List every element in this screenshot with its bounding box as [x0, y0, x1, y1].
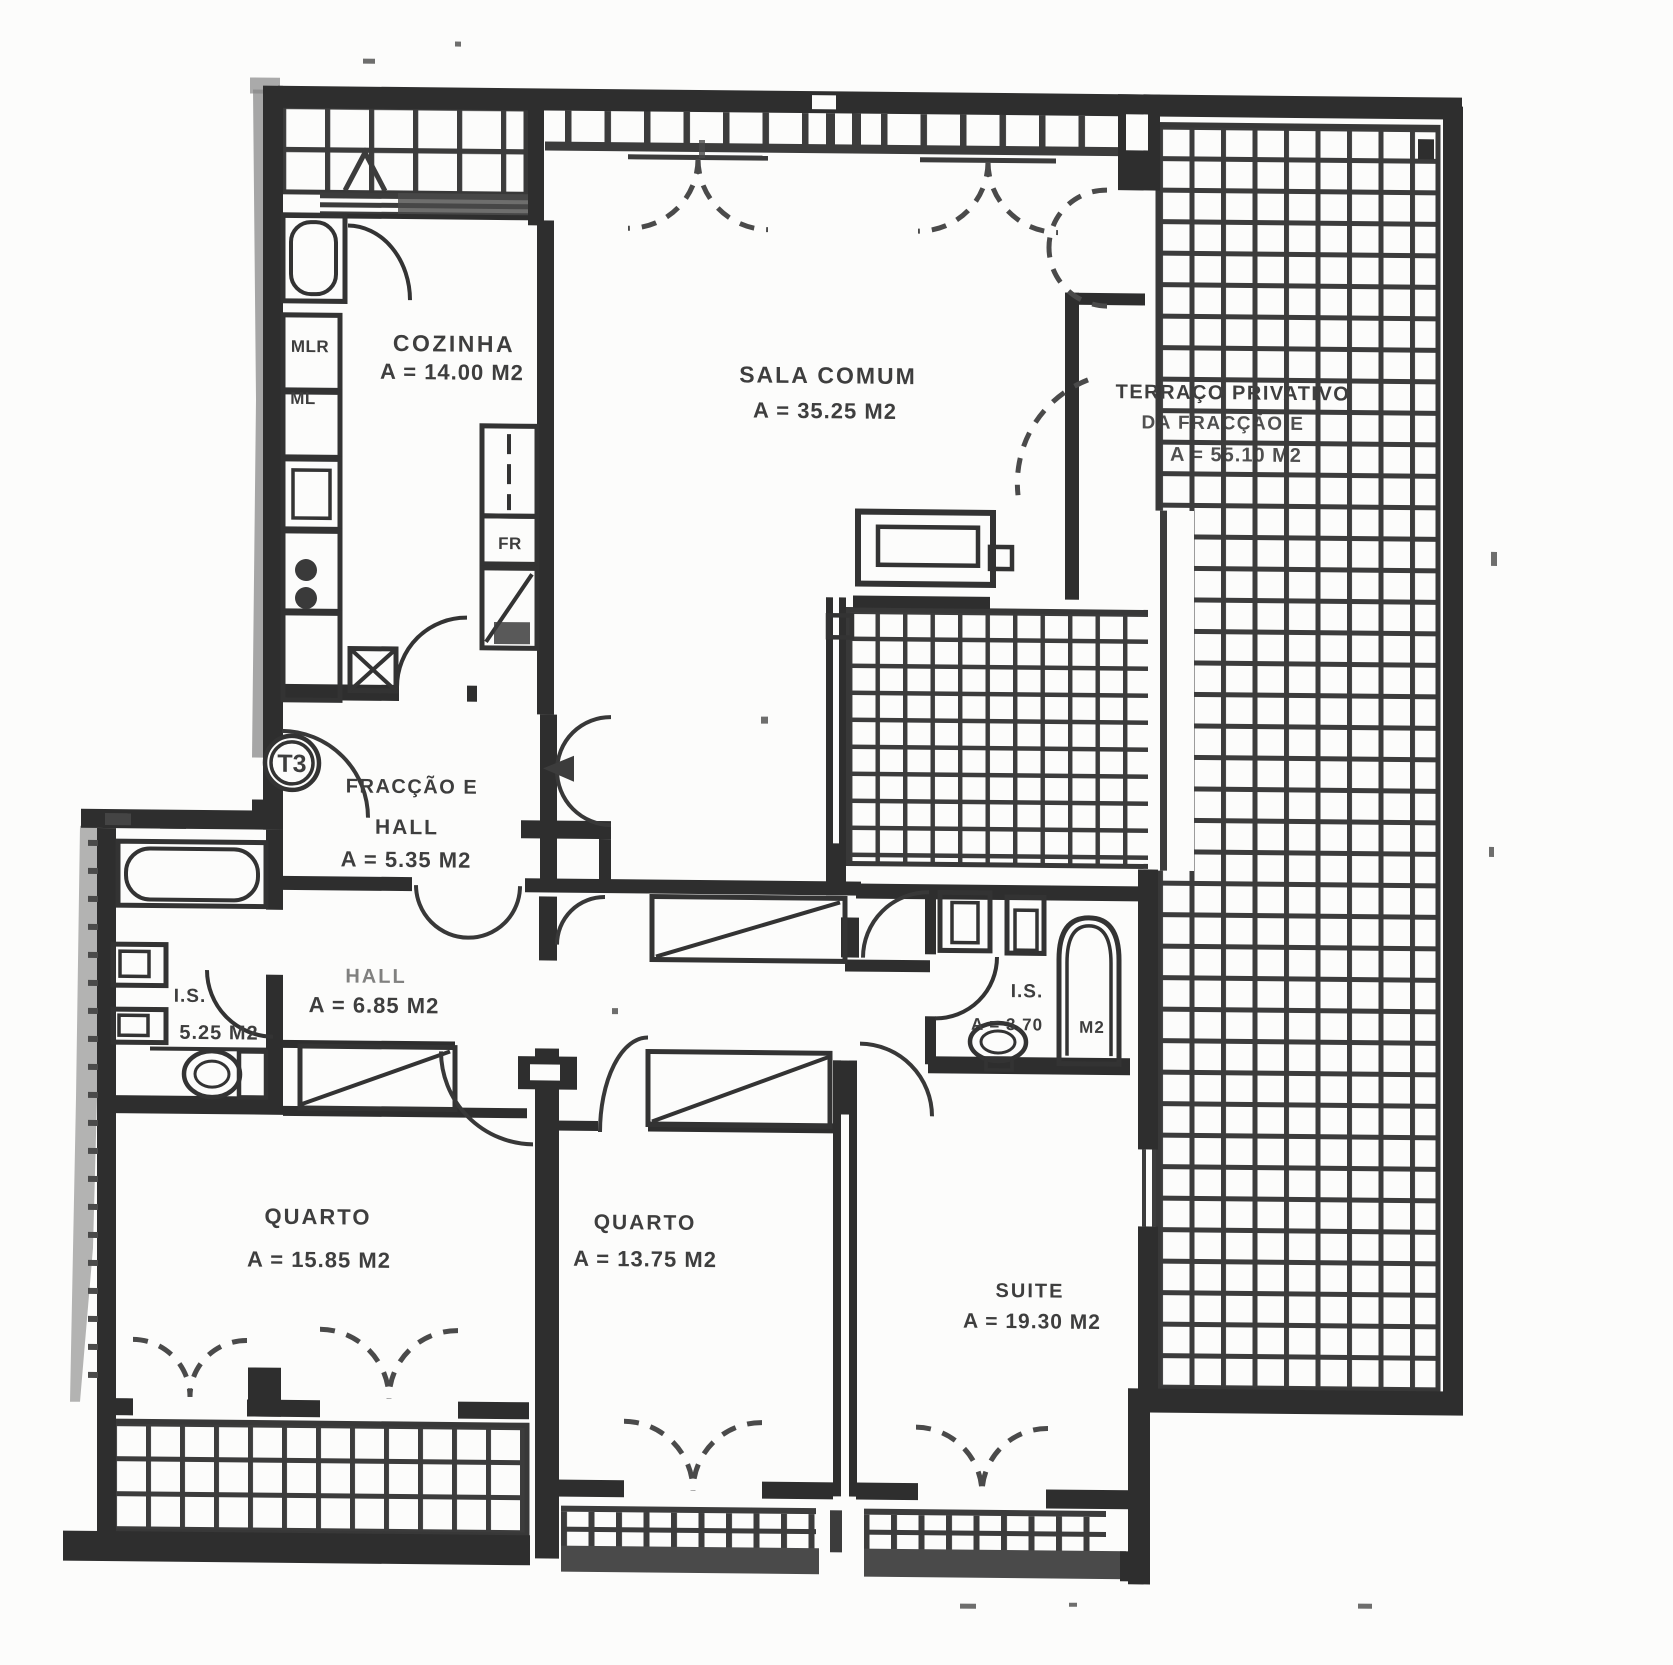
svg-text:M2: M2: [1079, 1018, 1105, 1037]
svg-text:A = 5.35 M2: A = 5.35 M2: [341, 846, 472, 872]
svg-text:ML: ML: [290, 389, 316, 408]
svg-text:A = 35.25 M2: A = 35.25 M2: [753, 398, 897, 424]
svg-text:FR: FR: [498, 534, 522, 553]
svg-text:HALL: HALL: [345, 965, 406, 988]
svg-text:MLR: MLR: [291, 337, 329, 356]
svg-text:COZINHA: COZINHA: [393, 330, 515, 357]
svg-text:T3: T3: [277, 750, 306, 778]
svg-text:A = 3.70: A = 3.70: [971, 1015, 1043, 1035]
svg-text:A = 14.00 M2: A = 14.00 M2: [380, 359, 524, 385]
svg-text:A = 19.30 M2: A = 19.30 M2: [963, 1310, 1101, 1334]
svg-text:I.S.: I.S.: [1011, 981, 1044, 1002]
svg-text:FRACÇÃO E: FRACÇÃO E: [346, 774, 478, 798]
svg-text:5.25 M2: 5.25 M2: [179, 1022, 258, 1045]
svg-text:A = 13.75 M2: A = 13.75 M2: [573, 1246, 717, 1272]
svg-text:SALA COMUM: SALA COMUM: [739, 361, 917, 389]
svg-text:QUARTO: QUARTO: [594, 1211, 697, 1235]
svg-text:I.S.: I.S.: [174, 986, 207, 1007]
svg-text:A = 6.85 M2: A = 6.85 M2: [309, 992, 440, 1018]
svg-text:DA FRACÇÃO E: DA FRACÇÃO E: [1142, 411, 1305, 435]
svg-text:TERRAÇO PRIVATIVO: TERRAÇO PRIVATIVO: [1116, 381, 1351, 405]
svg-text:A = 15.85 M2: A = 15.85 M2: [247, 1246, 391, 1272]
svg-text:HALL: HALL: [375, 816, 439, 840]
svg-text:QUARTO: QUARTO: [265, 1204, 372, 1230]
svg-text:SUITE: SUITE: [996, 1280, 1065, 1303]
svg-text:A = 55.10 M2: A = 55.10 M2: [1170, 444, 1302, 467]
